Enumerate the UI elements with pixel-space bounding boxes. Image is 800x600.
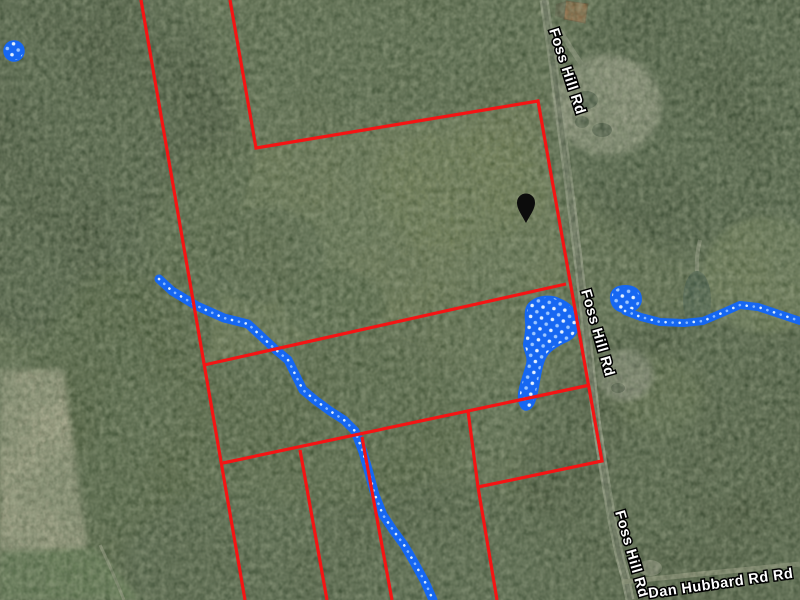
satellite-map: Foss Hill RdFoss Hill RdFoss Hill RdDan … [0,0,800,600]
map-viewport[interactable]: Foss Hill RdFoss Hill RdFoss Hill RdDan … [0,0,800,600]
wetland-dot [4,41,24,61]
terrain-layer [0,0,800,600]
